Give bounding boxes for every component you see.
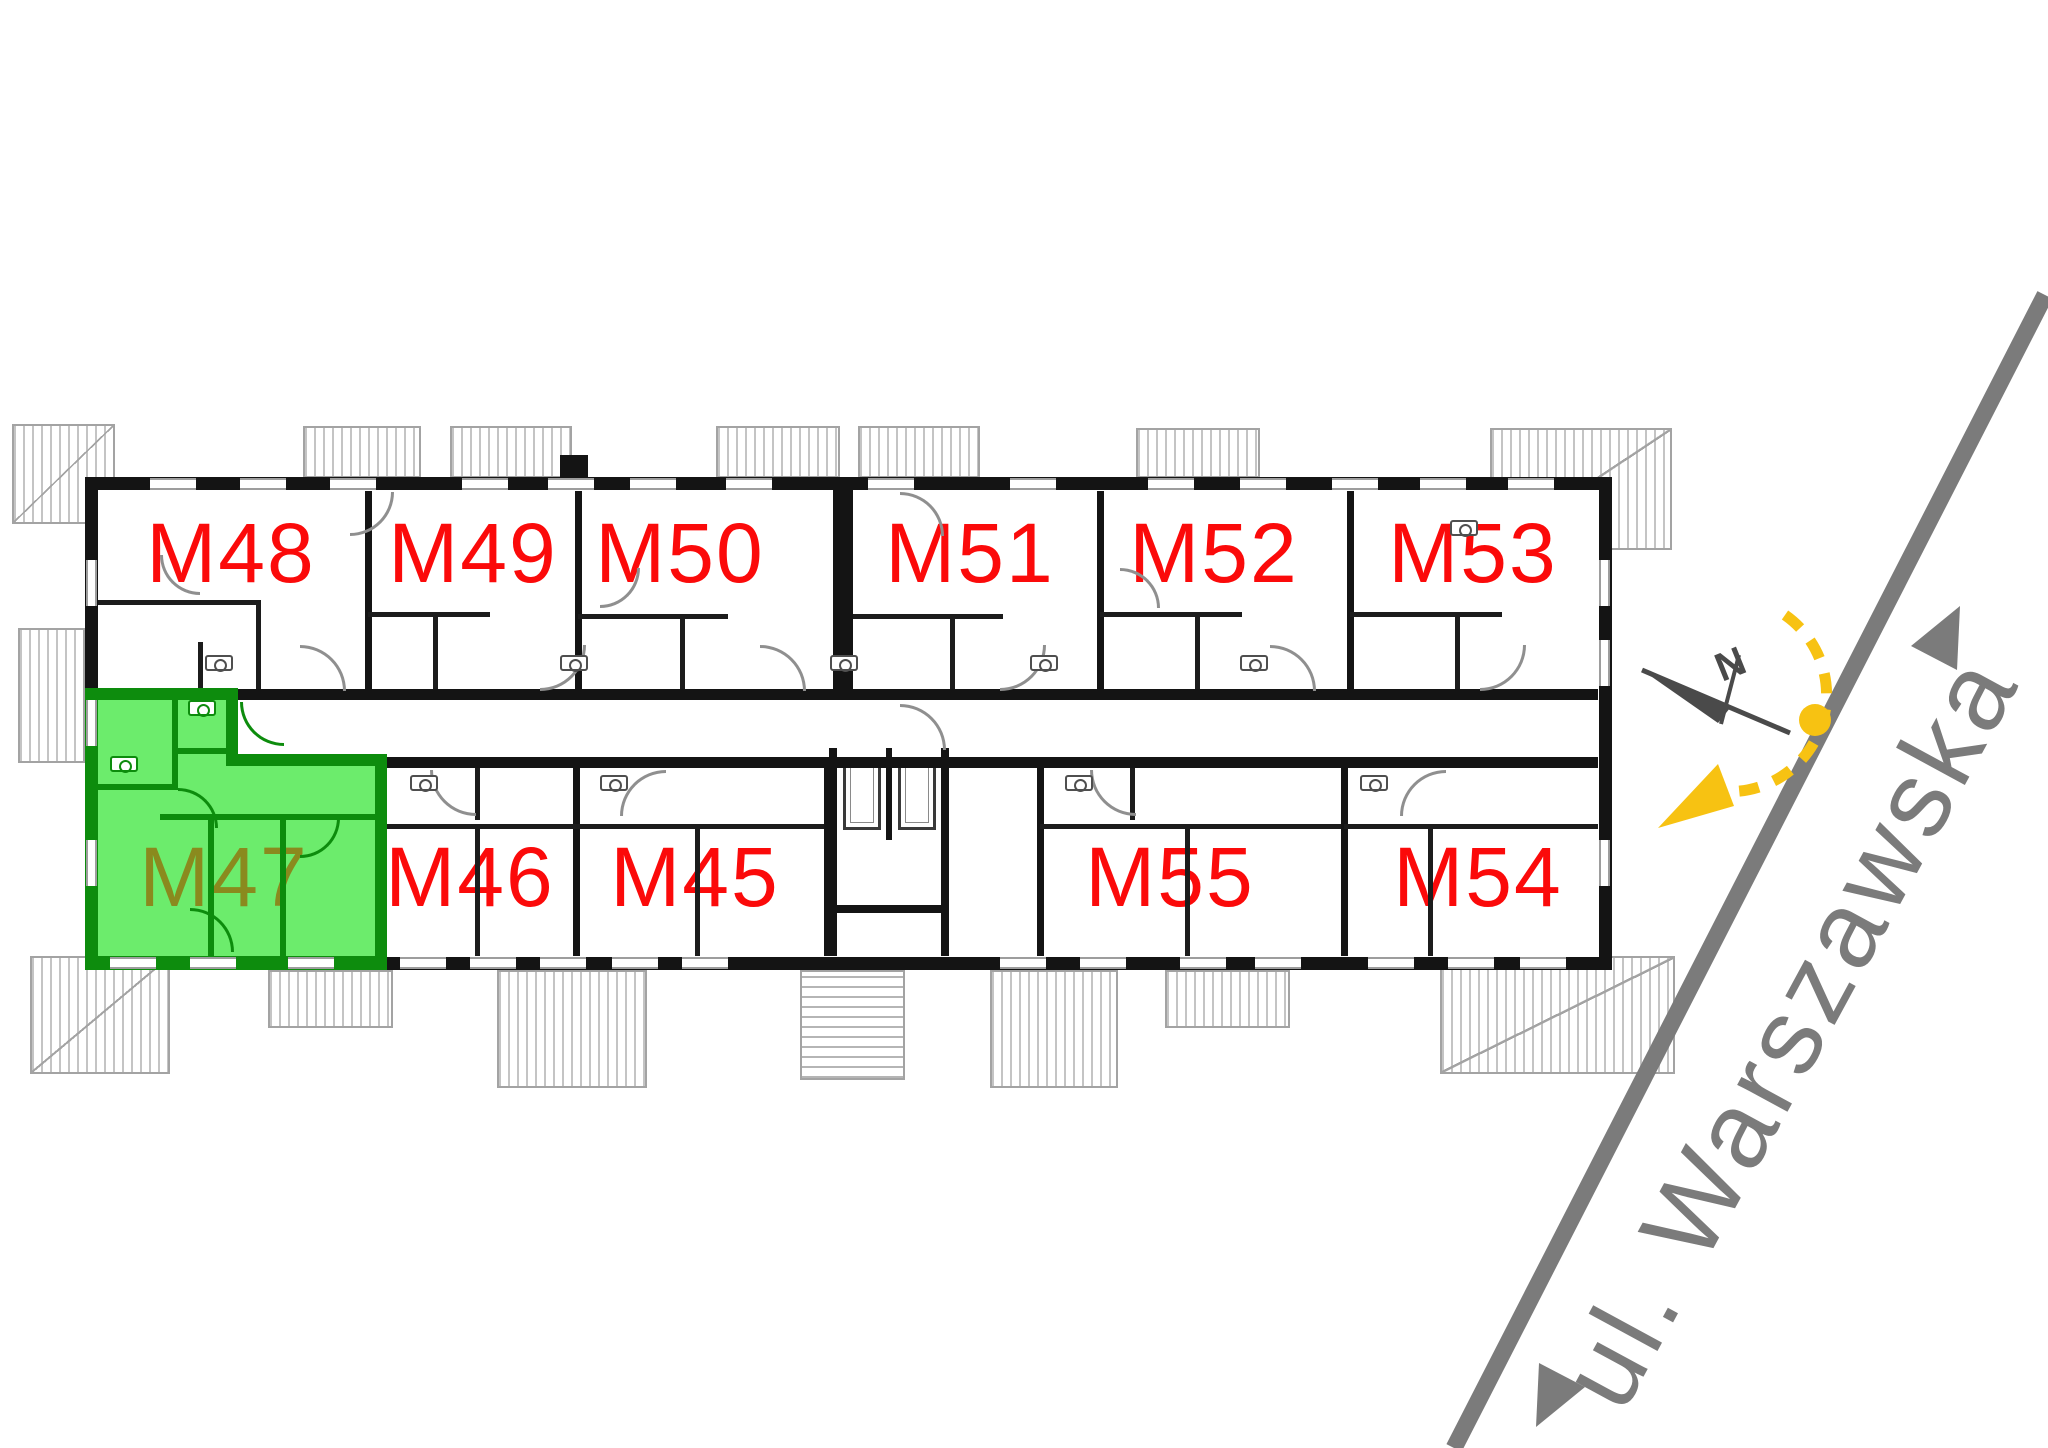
window [86, 700, 97, 746]
balcony [450, 426, 572, 478]
balcony [990, 970, 1118, 1088]
window [1599, 560, 1610, 606]
street-compass-overlay: ul. Warszawska N [1400, 250, 2048, 1448]
bathroom-fixture-icon [560, 655, 588, 671]
balcony [303, 426, 421, 478]
bathroom-fixture-icon [1240, 655, 1268, 671]
balcony [716, 426, 840, 478]
wall [578, 614, 728, 619]
wall [198, 642, 203, 689]
window [1508, 478, 1554, 490]
window [612, 957, 658, 969]
wall [98, 600, 261, 605]
bathroom-fixture-icon [1450, 520, 1478, 536]
window [86, 560, 97, 606]
wall [368, 612, 490, 617]
window [1255, 957, 1301, 969]
bathroom-fixture-icon [830, 655, 858, 671]
window [548, 478, 594, 490]
apartment-label-m55[interactable]: M55 [1085, 835, 1254, 919]
wall [1350, 612, 1502, 617]
sun-icon [1799, 704, 1831, 736]
balcony [1136, 428, 1260, 478]
wall [387, 824, 573, 829]
floorplan-canvas: M48 M49 M50 M51 M52 M53 M47 M46 M45 M55 … [0, 0, 2048, 1448]
apartment-label-m46[interactable]: M46 [385, 835, 554, 919]
window [868, 478, 914, 490]
window [682, 957, 728, 969]
wall [853, 614, 1003, 619]
window [540, 957, 586, 969]
window [470, 957, 516, 969]
wall [680, 614, 685, 689]
window [1599, 640, 1610, 686]
wall [256, 600, 261, 689]
bathroom-fixture-icon [600, 775, 628, 791]
bathroom-fixture-icon [1030, 655, 1058, 671]
wall [573, 768, 580, 956]
window [1010, 478, 1056, 490]
wall [1341, 768, 1348, 956]
elevator-icon [843, 758, 881, 830]
bathroom-fixture-icon [110, 756, 138, 772]
bathroom-fixture-icon [1065, 775, 1093, 791]
window [1448, 957, 1494, 969]
wall [1185, 829, 1190, 956]
window [150, 478, 196, 490]
balcony [18, 628, 85, 763]
wall [433, 612, 438, 689]
wall [1195, 612, 1200, 689]
wall [829, 905, 949, 913]
wall [1428, 829, 1433, 956]
window [400, 957, 446, 969]
wall [1040, 824, 1341, 829]
balcony [30, 956, 170, 1074]
balcony [1165, 970, 1290, 1028]
highlight-wall [280, 820, 286, 956]
highlight-wall [375, 754, 387, 970]
wall [829, 748, 837, 956]
window [1180, 957, 1226, 969]
north-compass-icon: N [1642, 639, 1790, 733]
wall [1344, 824, 1598, 829]
window [330, 478, 376, 490]
stairs [800, 970, 905, 1080]
wall [950, 614, 955, 689]
north-label: N [1709, 639, 1752, 691]
window [1420, 478, 1466, 490]
sun-arrow-icon [1658, 764, 1734, 828]
window [462, 478, 508, 490]
wall [475, 829, 480, 956]
wall [1347, 491, 1354, 689]
window [726, 478, 772, 490]
wall [695, 829, 700, 956]
balcony [858, 426, 980, 478]
window [630, 478, 676, 490]
street-name-label: ul. Warszawska [1536, 634, 2041, 1427]
bathroom-fixture-icon [205, 655, 233, 671]
balcony [268, 970, 393, 1028]
wall [1455, 612, 1460, 689]
wall [1100, 612, 1242, 617]
window [240, 478, 286, 490]
highlight-wall [172, 748, 232, 754]
highlight-wall [226, 754, 387, 766]
wall [941, 748, 949, 956]
window [1599, 840, 1610, 886]
wall [560, 455, 588, 479]
window [110, 957, 156, 969]
wall [387, 757, 1598, 768]
apartment-label-m52[interactable]: M52 [1129, 511, 1298, 595]
wall [886, 748, 892, 840]
window [1000, 957, 1046, 969]
bathroom-fixture-icon [188, 700, 216, 716]
apartment-label-m49[interactable]: M49 [388, 511, 557, 595]
window [1520, 957, 1566, 969]
window [288, 957, 334, 969]
window [1332, 478, 1378, 490]
wall [1037, 768, 1044, 956]
window [1240, 478, 1286, 490]
window [1368, 957, 1414, 969]
sun-path-icon [1658, 615, 1831, 828]
highlight-wall [172, 698, 178, 790]
highlight-wall [85, 688, 238, 700]
window [1080, 957, 1126, 969]
window [86, 840, 97, 886]
balcony [497, 970, 647, 1088]
highlight-wall [98, 784, 178, 790]
street-line [1454, 295, 2045, 1448]
bathroom-fixture-icon [410, 775, 438, 791]
elevator-icon [898, 758, 936, 830]
window [190, 957, 236, 969]
bathroom-fixture-icon [1360, 775, 1388, 791]
wall [1097, 491, 1104, 689]
window [1148, 478, 1194, 490]
